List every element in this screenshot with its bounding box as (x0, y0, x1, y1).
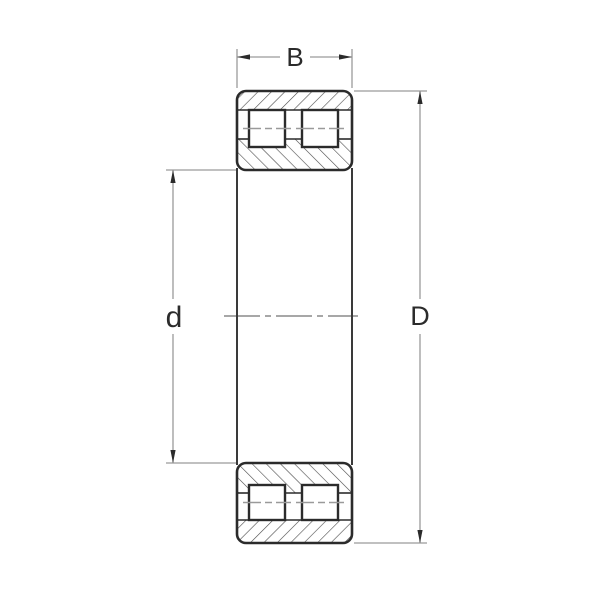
bottom-ring-section (237, 463, 352, 543)
arrow-up-icon (417, 91, 422, 104)
arrow-left-icon (237, 54, 250, 59)
outer-ring-hatch-top (237, 91, 352, 110)
dimension-b: B (237, 42, 352, 88)
dimension-d-label: d (166, 301, 183, 334)
arrow-down-icon (417, 530, 422, 543)
arrow-right-icon (339, 54, 352, 59)
bearing-technical-drawing: B d D (0, 0, 600, 600)
top-ring-section (237, 91, 352, 170)
drawing-canvas: B d D (0, 0, 600, 600)
dimension-d-outer: D (354, 91, 430, 543)
arrow-up-icon (170, 170, 175, 183)
outer-ring-hatch-bottom (237, 520, 352, 543)
arrow-down-icon (170, 450, 175, 463)
dimension-b-label: B (286, 42, 303, 72)
dimension-D-label: D (410, 301, 430, 331)
